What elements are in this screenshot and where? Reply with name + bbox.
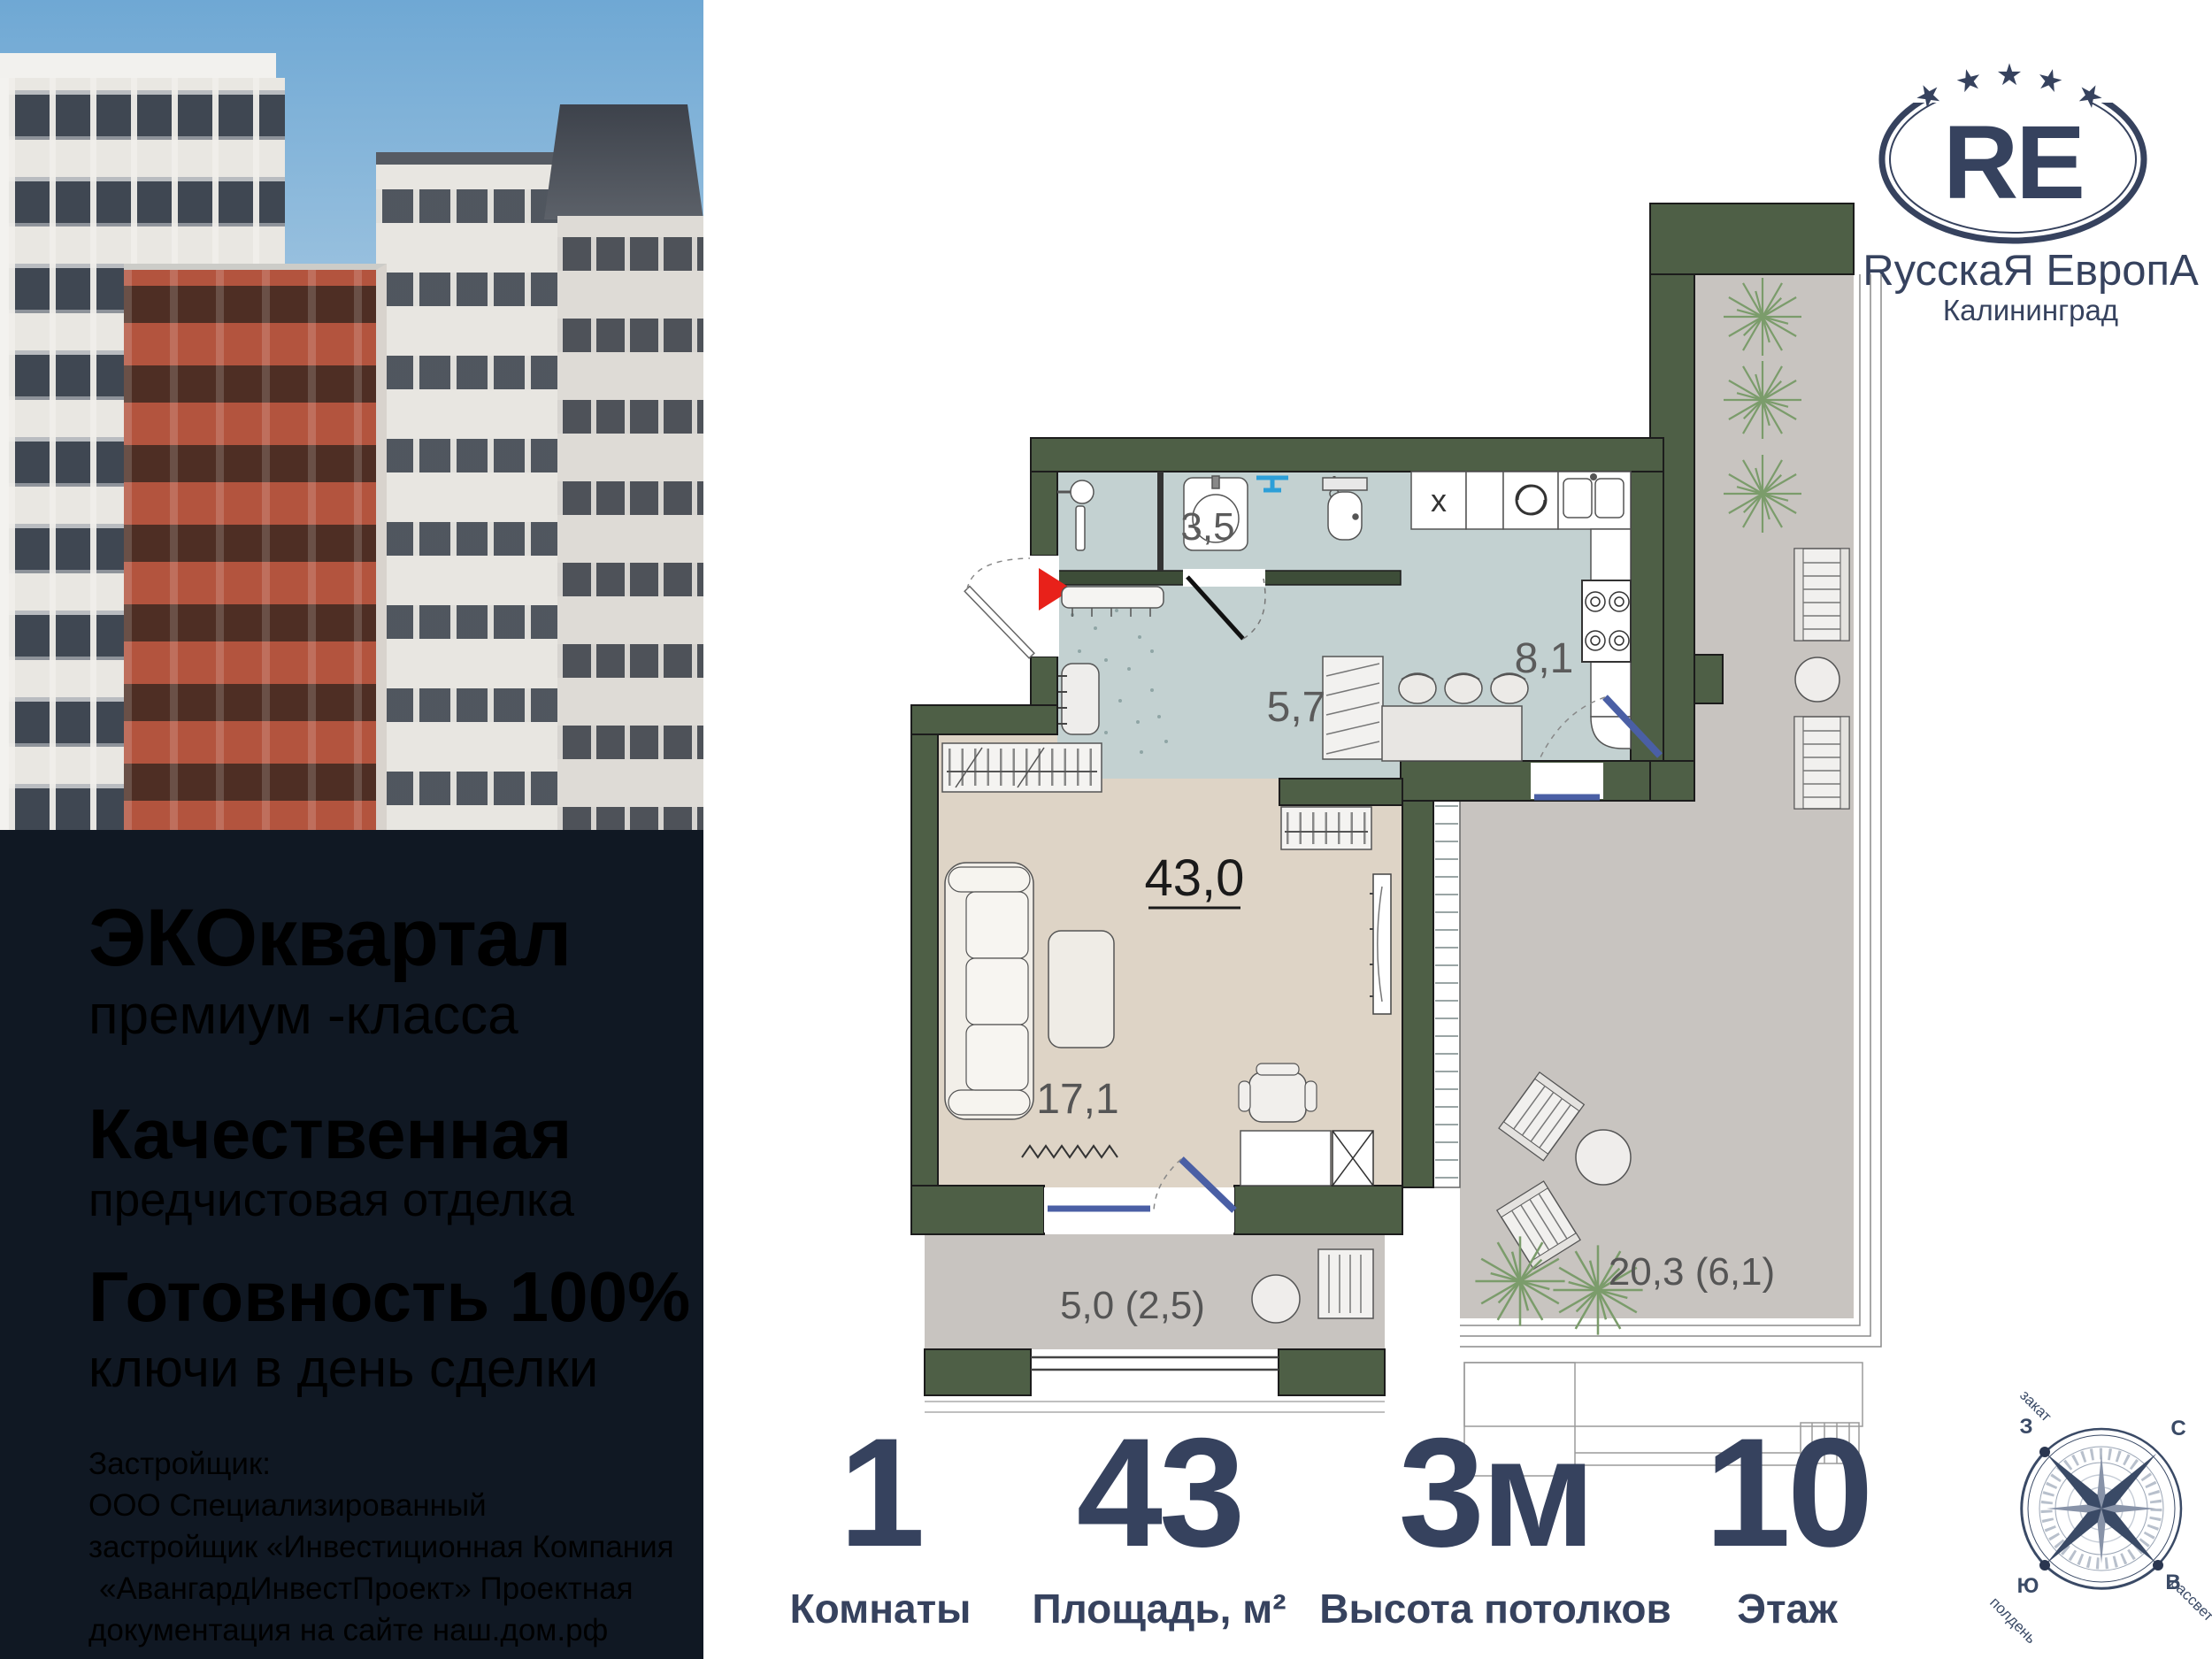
balcony-chair-icon <box>1318 1249 1373 1318</box>
flat-advert-poster: ЭКОквартал премиум -класса Качественная … <box>0 0 2212 1659</box>
shower-head-icon <box>1071 480 1094 503</box>
area-total: 43,0 <box>1145 849 1245 908</box>
area-balcony: 5,0 (2,5) <box>1060 1284 1205 1327</box>
coat-rack-icon <box>1062 587 1164 608</box>
stat-floor-label: Этаж <box>1584 1585 1991 1632</box>
svg-text:43,0: 43,0 <box>1145 849 1245 907</box>
white-building-middle <box>376 152 575 830</box>
tv-icon <box>1370 874 1391 1014</box>
stat-floor: 10 Этаж <box>1584 1416 1991 1632</box>
promo-finishing: предчистовая отделка <box>88 1173 574 1227</box>
entry-door-arc <box>967 558 1030 589</box>
red-brick-building <box>124 264 387 830</box>
developer-line: Застройщик: <box>88 1444 674 1486</box>
mansard-roof <box>544 104 703 219</box>
terrace-table-icon <box>1576 1130 1631 1185</box>
area-kitchen: 8,1 <box>1515 635 1574 682</box>
entry-door-leaf <box>964 587 1034 658</box>
kitchen-x-mark: x <box>1431 482 1447 518</box>
floor-plan: x <box>841 168 1947 1478</box>
coffee-table-icon <box>1048 931 1114 1048</box>
compass-north: С <box>2170 1417 2185 1440</box>
bar-stools-icon <box>1399 673 1528 703</box>
storage-rack-icon <box>1323 657 1383 759</box>
promo-quality: Качественная <box>88 1094 572 1175</box>
area-bathroom: 3,5 <box>1180 505 1234 549</box>
terrace-table-icon <box>1795 657 1839 702</box>
stat-floor-value: 10 <box>1584 1416 1991 1571</box>
building-photo <box>0 0 703 830</box>
bench-icon <box>1062 664 1099 734</box>
area-terrace: 20,3 (6,1) <box>1609 1250 1775 1294</box>
promo-premium-class: премиум -класса <box>88 984 518 1047</box>
wardrobe-rail-icon <box>1281 807 1371 849</box>
balcony-table-icon <box>1252 1275 1300 1323</box>
compass-rose: С В Ю З закат полдень рассвет <box>1982 1380 2212 1646</box>
compass-noon: полдень <box>1986 1594 2039 1646</box>
promo-keys: ключи в день сделки <box>88 1338 598 1399</box>
developer-line: «АвангардИнвестПроект» Проектная <box>88 1569 674 1610</box>
shower-partition <box>1157 472 1164 571</box>
cabinet-x-icon <box>1333 1131 1373 1186</box>
washing-machine-icon <box>1503 472 1558 529</box>
wardrobe-rail-icon <box>942 743 1102 792</box>
compass-south: Ю <box>2017 1574 2039 1598</box>
promo-readiness: Готовность 100% <box>88 1256 690 1338</box>
developer-line: документация на сайте наш.дом.рф <box>88 1610 674 1652</box>
sun-lounger-icon <box>1794 717 1849 809</box>
bar-table-icon <box>1382 706 1522 761</box>
shower-column-icon <box>1076 506 1085 550</box>
developer-info: Застройщик: ООО Специализированный застр… <box>88 1444 674 1651</box>
sun-lounger-icon <box>1794 549 1849 641</box>
promo-eco-quarter: ЭКОквартал <box>88 892 571 985</box>
white-building-right <box>557 216 703 830</box>
developer-line: ООО Специализированный <box>88 1486 674 1527</box>
toilet-tank-icon <box>1323 478 1367 490</box>
terrace-strip-floor <box>1694 274 1854 792</box>
compass-dawn: рассвет <box>2167 1574 2212 1624</box>
logo-initials: RE <box>1943 104 2083 221</box>
roof-deck <box>0 53 276 78</box>
sofa-icon <box>945 863 1033 1119</box>
desk-icon <box>1240 1131 1331 1186</box>
developer-line: застройщик «Инвестиционная Компания <box>88 1527 674 1569</box>
glazed-wall <box>1433 801 1460 1187</box>
area-living: 17,1 <box>1036 1076 1118 1123</box>
compass-west: З <box>2019 1415 2032 1439</box>
area-hallway: 5,7 <box>1267 684 1326 731</box>
kitchen-door-opening <box>1531 763 1603 799</box>
star-icon: ★ <box>1996 58 2023 92</box>
brand-city: Калининград <box>1943 294 2118 326</box>
